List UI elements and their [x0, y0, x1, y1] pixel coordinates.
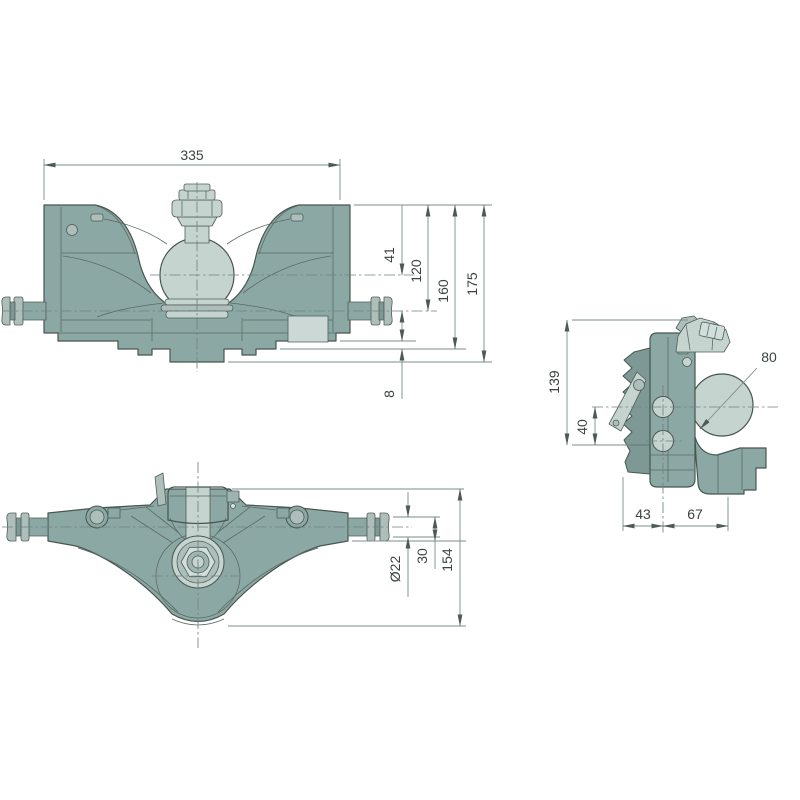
technical-drawing: 335 175 160 120 41 8 — [0, 0, 800, 800]
dim-175-label: 175 — [464, 272, 480, 296]
dim-30-label: 30 — [414, 548, 430, 564]
dim-335-label: 335 — [180, 147, 204, 163]
dim-160-label: 160 — [435, 279, 451, 303]
dim-120-label: 120 — [408, 259, 424, 283]
dim-80-label: 80 — [761, 349, 777, 365]
dim-41-label: 41 — [381, 247, 397, 263]
plate-hole — [683, 358, 692, 367]
dim-8-label: 8 — [381, 390, 397, 398]
dim-154-label: 154 — [439, 548, 455, 572]
mount-hole-front — [67, 225, 78, 236]
dim-43-label: 43 — [635, 506, 651, 522]
dim-40-label: 40 — [574, 419, 590, 435]
dim-22-label: Ø22 — [387, 556, 403, 583]
latch-tab-hole — [231, 504, 236, 509]
latch-tab — [227, 491, 239, 502]
name-plate — [288, 316, 328, 342]
dim-67-label: 67 — [687, 506, 703, 522]
left-hinge-boss-front — [91, 214, 103, 221]
throat-channel — [186, 487, 210, 541]
right-hinge-boss-front — [291, 214, 303, 221]
dim-139-label: 139 — [546, 370, 562, 394]
